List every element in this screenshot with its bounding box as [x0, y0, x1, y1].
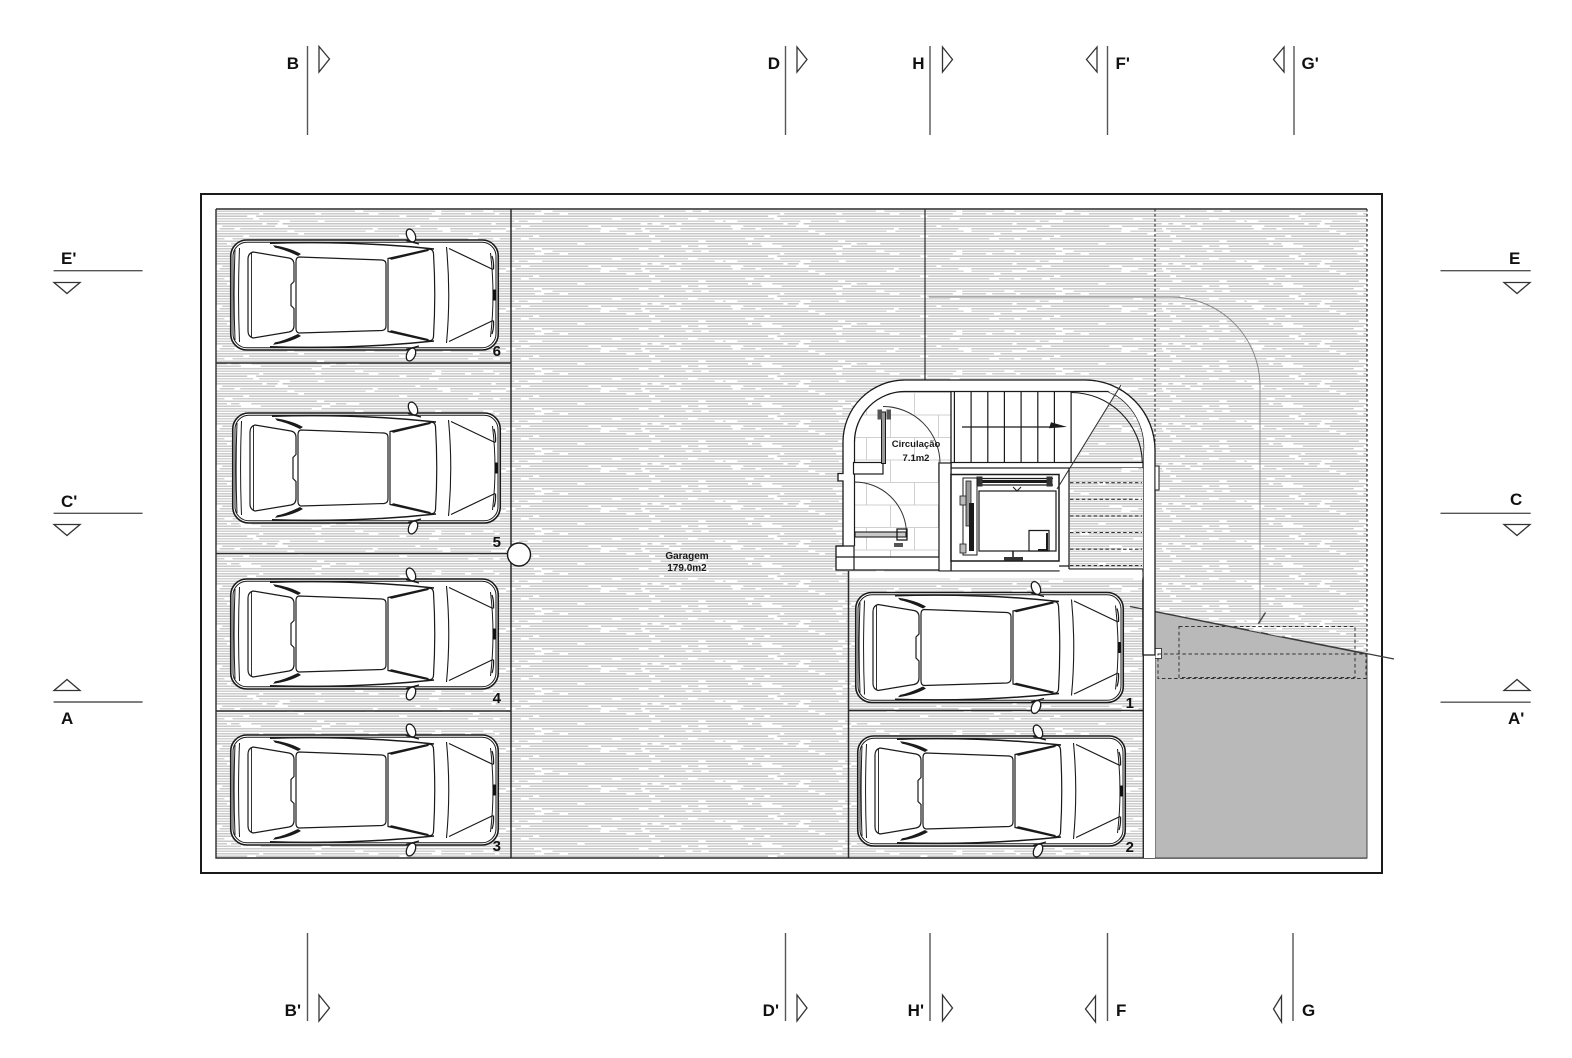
- svg-text:179.0m2: 179.0m2: [667, 563, 707, 574]
- svg-text:5: 5: [493, 534, 501, 551]
- svg-text:B': B': [285, 1001, 301, 1020]
- svg-text:6: 6: [493, 343, 501, 360]
- svg-text:C: C: [1510, 490, 1522, 509]
- svg-text:C': C': [61, 492, 77, 511]
- svg-text:A': A': [1508, 709, 1524, 728]
- svg-text:7.1m2: 7.1m2: [903, 453, 930, 464]
- svg-text:4: 4: [493, 690, 502, 707]
- svg-text:F': F': [1116, 54, 1130, 73]
- svg-text:1: 1: [1126, 695, 1134, 712]
- svg-text:E': E': [61, 249, 76, 268]
- svg-text:A: A: [61, 709, 73, 728]
- svg-text:D': D': [763, 1001, 779, 1020]
- svg-text:H: H: [912, 54, 924, 73]
- svg-text:G': G': [1302, 54, 1319, 73]
- svg-text:E: E: [1509, 249, 1520, 268]
- svg-text:G: G: [1302, 1001, 1315, 1020]
- svg-text:2: 2: [1126, 839, 1134, 856]
- svg-text:Circulação: Circulação: [892, 439, 941, 450]
- svg-text:F: F: [1116, 1001, 1126, 1020]
- svg-text:Garagem: Garagem: [665, 551, 708, 562]
- svg-text:H': H': [908, 1001, 924, 1020]
- svg-text:D: D: [768, 54, 780, 73]
- svg-text:3: 3: [493, 838, 501, 855]
- svg-text:B: B: [287, 54, 299, 73]
